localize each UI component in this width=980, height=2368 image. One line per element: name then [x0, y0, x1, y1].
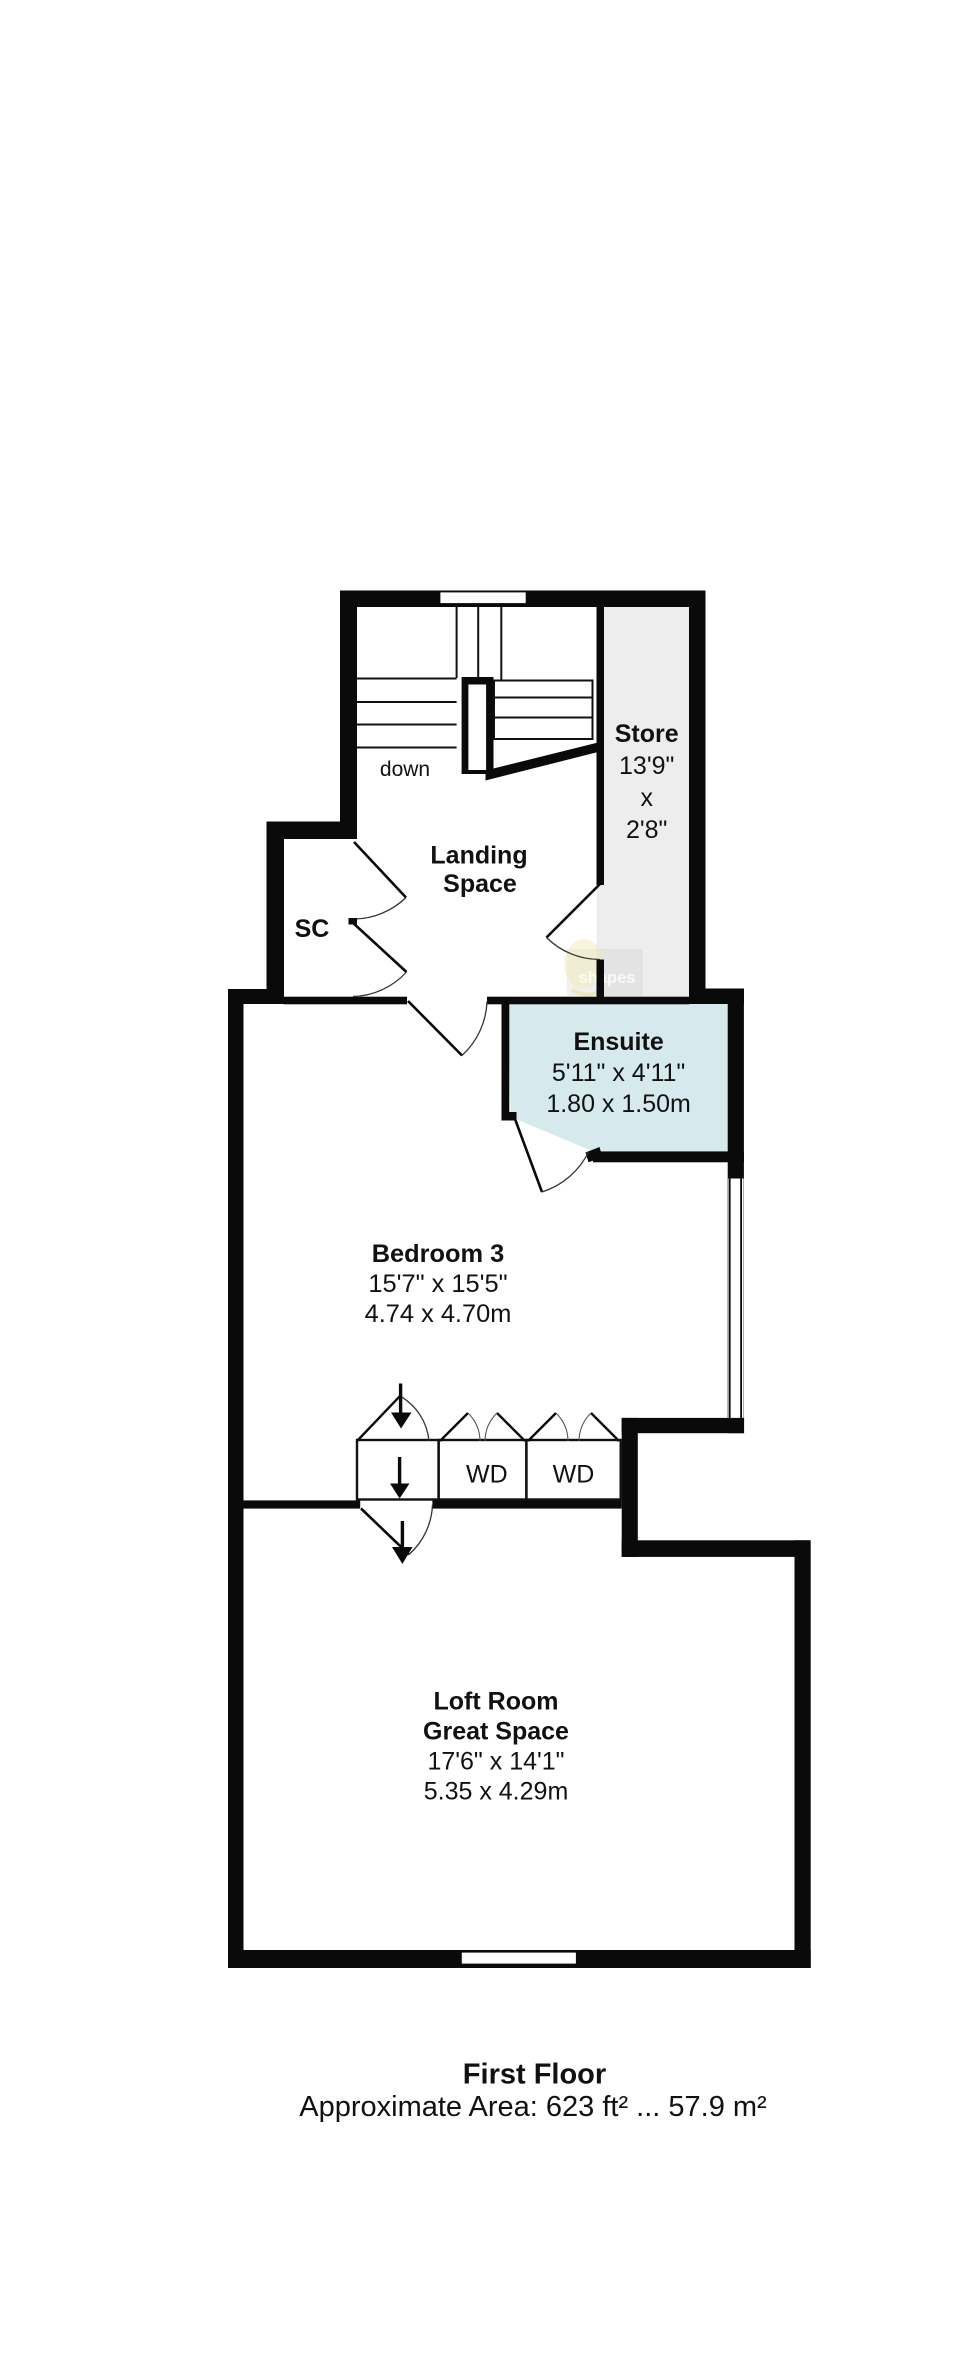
svg-text:Bedroom 3: Bedroom 3	[372, 1240, 505, 1268]
svg-text:15'7" x 15'5": 15'7" x 15'5"	[368, 1270, 507, 1298]
svg-text:Approximate Area: 623 ft² ...: Approximate Area: 623 ft² ... 57.9 m²	[299, 2091, 767, 2123]
svg-text:First Floor: First Floor	[463, 2059, 606, 2091]
svg-text:WD: WD	[466, 1461, 508, 1489]
svg-text:1.80 x 1.50m: 1.80 x 1.50m	[546, 1090, 691, 1118]
svg-text:13'9": 13'9"	[619, 752, 674, 780]
svg-text:Loft Room: Loft Room	[434, 1688, 559, 1716]
svg-text:5.35 x 4.29m: 5.35 x 4.29m	[424, 1778, 569, 1806]
svg-text:Great Space: Great Space	[423, 1718, 569, 1746]
svg-text:17'6" x 14'1": 17'6" x 14'1"	[427, 1748, 564, 1776]
svg-text:4.74 x 4.70m: 4.74 x 4.70m	[365, 1300, 512, 1328]
svg-text:5'11" x 4'11": 5'11" x 4'11"	[552, 1059, 685, 1087]
svg-text:down: down	[380, 758, 430, 781]
svg-text:WD: WD	[553, 1461, 595, 1489]
svg-text:Store: Store	[615, 720, 679, 748]
svg-text:Ensuite: Ensuite	[573, 1028, 663, 1056]
svg-text:SC: SC	[295, 915, 330, 943]
svg-text:x: x	[640, 784, 653, 812]
svg-text:2'8": 2'8"	[626, 816, 667, 844]
svg-text:Landing: Landing	[430, 842, 527, 870]
svg-text:Space: Space	[443, 870, 517, 898]
svg-text:shapes: shapes	[579, 969, 636, 987]
